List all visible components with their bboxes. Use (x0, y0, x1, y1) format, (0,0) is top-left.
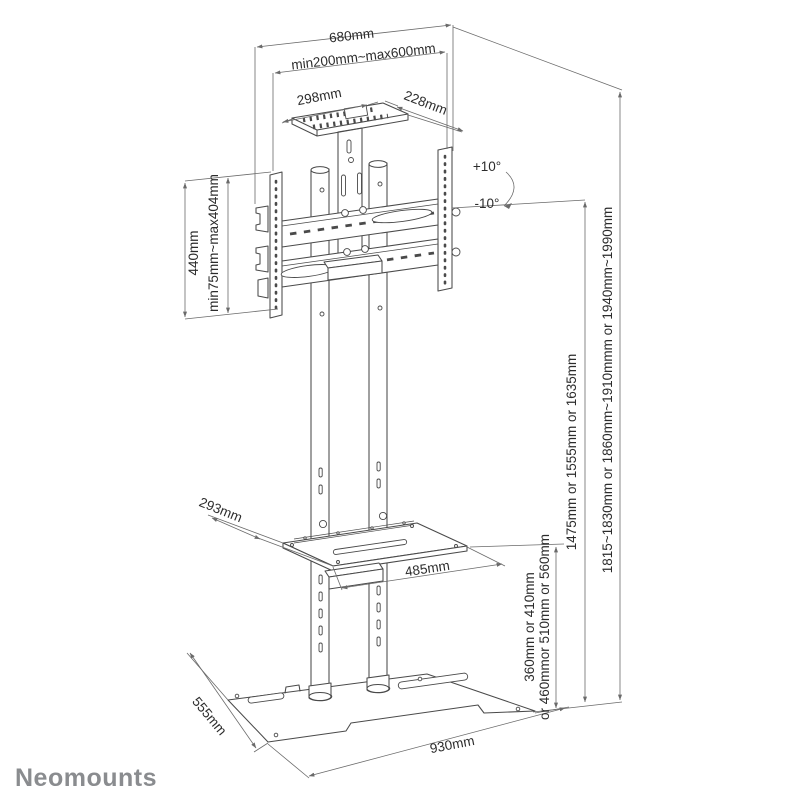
dim-top-shelf-width-label: 298mm (296, 85, 343, 108)
pole-right (369, 161, 387, 679)
tilt-up-label: +10° (473, 159, 501, 174)
dim-mid-shelf-width-label: 485mm (404, 558, 451, 579)
center-column (338, 128, 362, 263)
pole-collar-left (309, 683, 332, 701)
dim-bracket-height-range-label: min75mm~max404mm (206, 174, 221, 312)
brand-logo: Neomounts (15, 764, 157, 792)
dim-shelf-height-label-2: or 460mmor 510mm or 560mm (537, 534, 552, 720)
dim-bracket-height-label: 440mm (186, 230, 201, 275)
dim-total-height-label: 1815~1830mm or 1860mm~1910mmm or 1940mm~… (600, 207, 615, 574)
vesa-rail-right (438, 147, 460, 291)
dim-mid-shelf-depth-label: 293mm (197, 494, 244, 525)
dim-top-width-label: 680mm (328, 26, 374, 46)
pole-collar-right (367, 675, 390, 693)
pole-left (311, 167, 329, 687)
dim-shelf-height-label-1: 360mm or 410mm (522, 572, 537, 682)
tilt-down-label: -10° (475, 196, 500, 211)
dim-screen-center-height-label: 1475mm or 1555mm or 1635mm (564, 354, 579, 551)
diagram-page: 680mm min200mm~max600mm 298mm 228mm +10°… (0, 0, 800, 800)
dimension-labels: 680mm min200mm~max600mm 298mm 228mm +10°… (186, 26, 615, 757)
dim-mount-width-range-label: min200mm~max600mm (291, 40, 437, 72)
dimension-annotations (185, 25, 622, 778)
floor-stand-diagram: 680mm min200mm~max600mm 298mm 228mm +10°… (0, 0, 800, 800)
vesa-rail-left (256, 172, 282, 318)
leader-screen-center (452, 200, 585, 208)
leader-total-height (453, 27, 622, 90)
tilt-arc (504, 172, 514, 209)
dim-base-width-label: 930mm (429, 733, 476, 756)
dim-top-shelf-depth-label: 228mm (402, 88, 449, 118)
